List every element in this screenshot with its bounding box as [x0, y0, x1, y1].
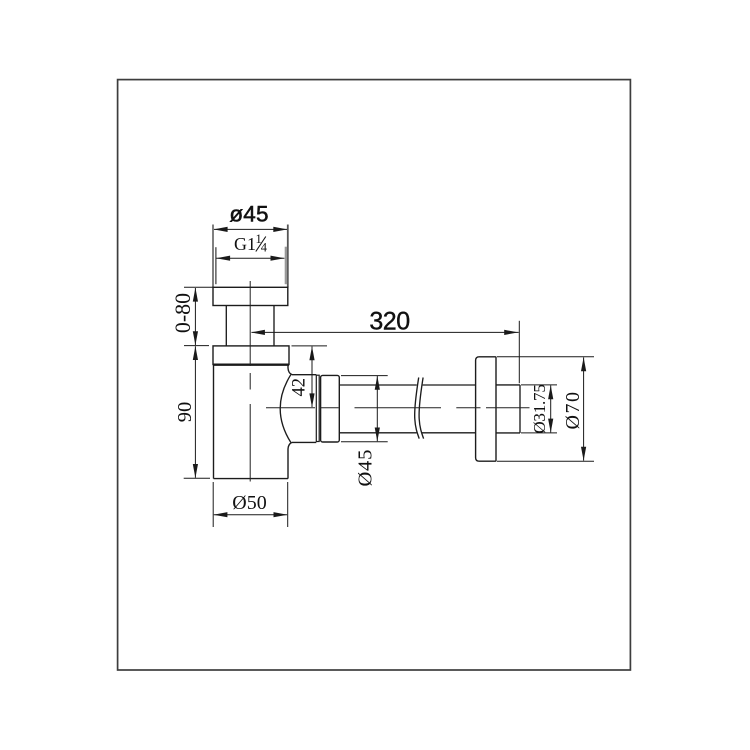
- svg-text:90: 90: [174, 402, 196, 423]
- svg-text:Ø45: Ø45: [355, 449, 377, 487]
- svg-text:4: 4: [261, 241, 268, 255]
- svg-text:Ø50: Ø50: [232, 492, 266, 514]
- svg-text:Ø70: Ø70: [562, 391, 584, 430]
- svg-text:ø45: ø45: [229, 201, 268, 226]
- svg-text:42: 42: [290, 378, 310, 397]
- svg-text:G1: G1: [234, 234, 256, 254]
- svg-text:Ø31.75: Ø31.75: [530, 384, 549, 433]
- svg-text:320: 320: [369, 307, 409, 335]
- svg-text:0-80: 0-80: [170, 293, 195, 333]
